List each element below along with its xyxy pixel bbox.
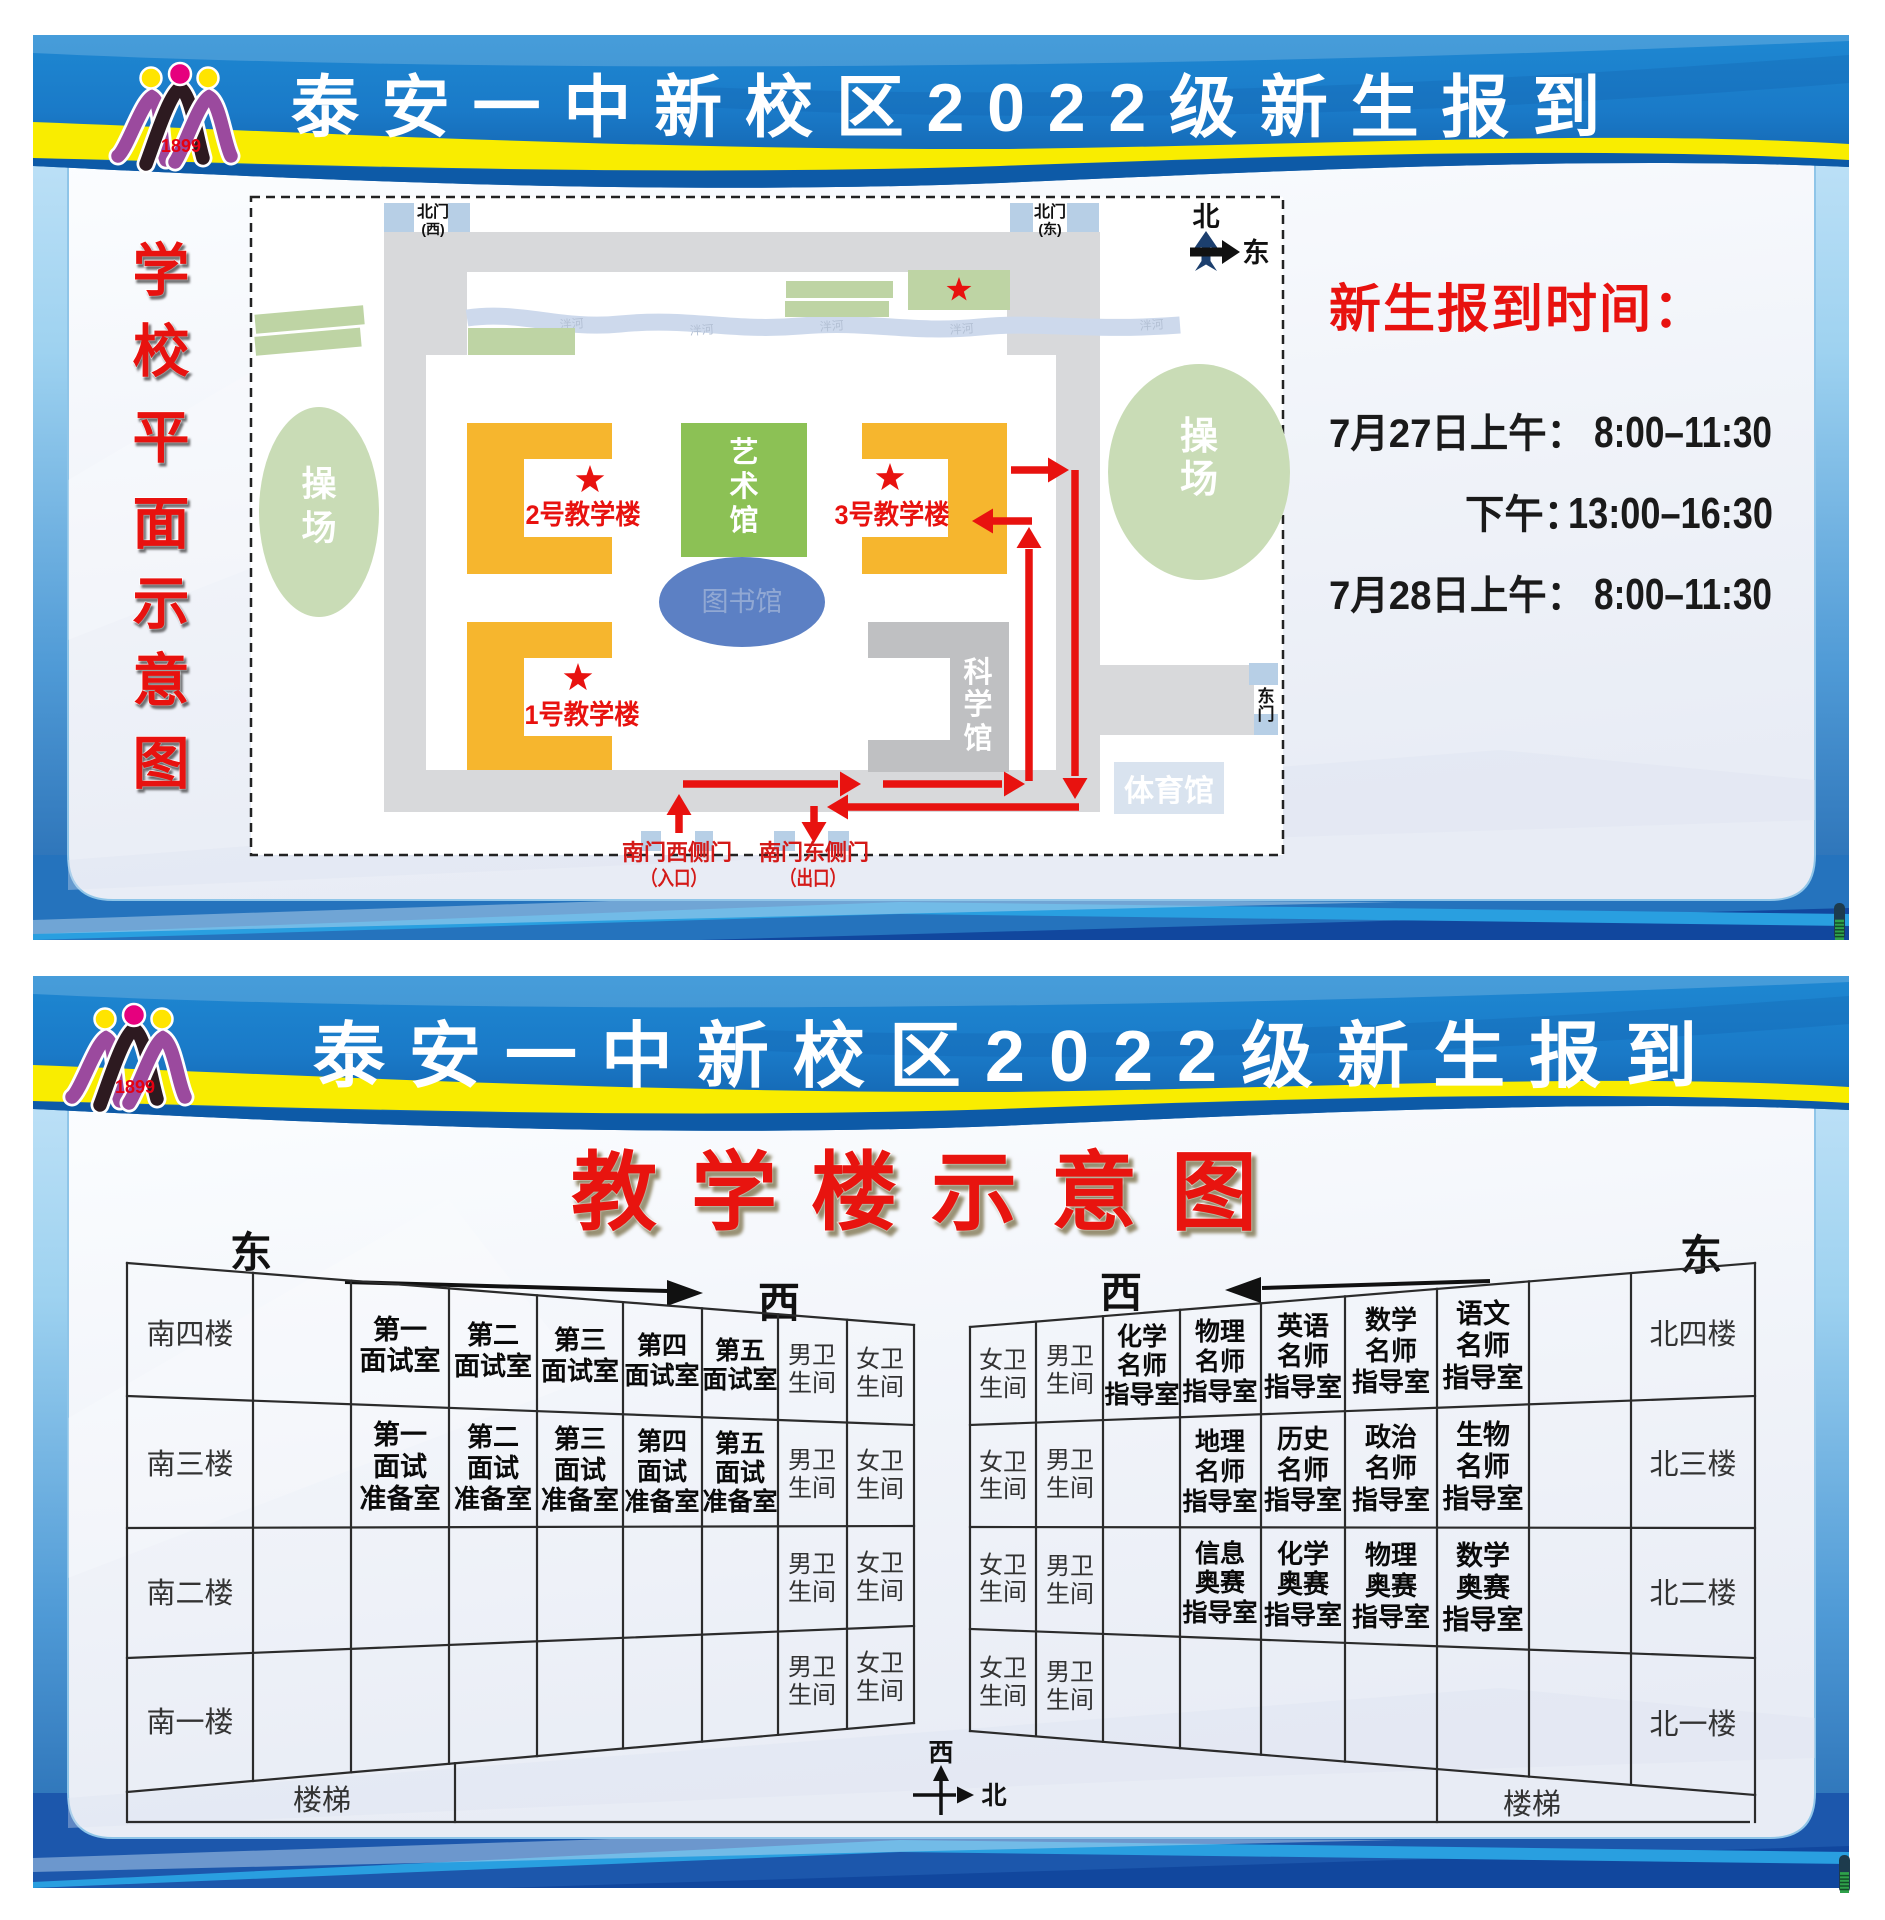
svg-text:学: 学 [133, 239, 190, 303]
svg-text:准备室: 准备室 [541, 1485, 619, 1515]
svg-text:（入口）: （入口） [641, 867, 707, 890]
svg-text:第二: 第二 [467, 1422, 519, 1452]
svg-text:奥赛: 奥赛 [1277, 1569, 1330, 1599]
svg-text:北: 北 [1193, 202, 1220, 232]
svg-text:泰安一中新校区2022级新生报到: 泰安一中新校区2022级新生报到 [291, 70, 1623, 146]
svg-text:生间: 生间 [856, 1578, 904, 1605]
svg-text:生间: 生间 [979, 1476, 1027, 1503]
svg-text:男卫: 男卫 [1046, 1344, 1094, 1370]
svg-text:泮河: 泮河 [949, 321, 974, 337]
svg-text:化学: 化学 [1277, 1539, 1329, 1569]
svg-text:名师: 名师 [1277, 1455, 1329, 1485]
svg-text:生间: 生间 [788, 1370, 836, 1397]
svg-text:名师: 名师 [1195, 1347, 1245, 1376]
svg-text:面试室: 面试室 [541, 1356, 619, 1386]
svg-text:面试室: 面试室 [360, 1345, 441, 1376]
svg-text:英语: 英语 [1277, 1311, 1329, 1341]
svg-text:面试: 面试 [637, 1458, 687, 1486]
svg-text:北一楼: 北一楼 [1649, 1708, 1736, 1741]
svg-text:面试: 面试 [715, 1459, 765, 1487]
svg-text:13:00–16:30: 13:00–16:30 [1568, 489, 1773, 538]
svg-text:面: 面 [133, 492, 190, 556]
svg-text:面试: 面试 [554, 1455, 606, 1485]
svg-text:南三楼: 南三楼 [146, 1448, 233, 1481]
svg-text:第一: 第一 [373, 1419, 427, 1450]
svg-text:泮河: 泮河 [819, 318, 844, 334]
svg-text:学: 学 [963, 687, 992, 721]
svg-text:8:00–11:30: 8:00–11:30 [1594, 408, 1772, 457]
svg-text:术: 术 [729, 470, 758, 503]
svg-text:1899: 1899 [115, 1077, 155, 1097]
svg-text:生间: 生间 [856, 1374, 904, 1401]
svg-text:东: 东 [1680, 1232, 1722, 1279]
svg-text:场: 场 [1180, 459, 1218, 501]
svg-text:生间: 生间 [856, 1678, 904, 1705]
svg-text:北二楼: 北二楼 [1649, 1577, 1736, 1610]
svg-text:教学楼示意图: 教学楼示意图 [571, 1145, 1291, 1241]
svg-text:指导室: 指导室 [1443, 1362, 1524, 1393]
svg-text:生间: 生间 [979, 1579, 1027, 1606]
svg-text:政治: 政治 [1365, 1422, 1417, 1452]
svg-text:数学: 数学 [1456, 1540, 1510, 1571]
svg-text:馆: 馆 [729, 503, 758, 537]
svg-text:东: 东 [1258, 686, 1275, 706]
svg-text:指导室: 指导室 [1352, 1367, 1430, 1397]
svg-text:名师: 名师 [1195, 1457, 1245, 1486]
svg-text:历史: 历史 [1277, 1424, 1330, 1454]
svg-text:操: 操 [301, 465, 336, 504]
svg-text:男卫: 男卫 [1046, 1448, 1094, 1474]
svg-text:北: 北 [981, 1782, 1006, 1810]
svg-text:生间: 生间 [979, 1683, 1027, 1710]
svg-text:（出口）: （出口） [780, 867, 846, 890]
svg-text:东: 东 [230, 1229, 272, 1276]
svg-text:女卫: 女卫 [979, 1655, 1027, 1682]
svg-text:西: 西 [1100, 1269, 1142, 1316]
svg-text:名师: 名师 [1365, 1453, 1417, 1483]
svg-text:男卫: 男卫 [788, 1343, 836, 1369]
svg-text:奥赛: 奥赛 [1365, 1571, 1418, 1601]
svg-text:图书馆: 图书馆 [702, 587, 783, 617]
svg-text:面试室: 面试室 [702, 1365, 777, 1394]
svg-text:第四: 第四 [637, 1331, 687, 1360]
svg-text:指导室: 指导室 [1182, 1377, 1257, 1406]
svg-text:馆: 馆 [963, 721, 992, 755]
svg-text:名师: 名师 [1117, 1351, 1167, 1380]
svg-text:准备室: 准备室 [624, 1487, 699, 1516]
svg-text:生物: 生物 [1456, 1420, 1510, 1450]
svg-text:体育馆: 体育馆 [1124, 774, 1214, 808]
svg-text:北三楼: 北三楼 [1649, 1448, 1736, 1481]
svg-text:指导室: 指导室 [1443, 1604, 1524, 1635]
svg-text:意: 意 [133, 649, 190, 713]
svg-text:物理: 物理 [1365, 1540, 1417, 1570]
svg-text:泰安一中新校区2022级新生报到: 泰安一中新校区2022级新生报到 [313, 1017, 1721, 1097]
svg-text:指导室: 指导室 [1443, 1483, 1524, 1514]
svg-text:女卫: 女卫 [979, 1347, 1027, 1374]
svg-text:新生报到时间：: 新生报到时间： [1329, 281, 1707, 339]
svg-text:东: 东 [1243, 237, 1270, 268]
svg-text:第四: 第四 [637, 1427, 687, 1456]
svg-text:女卫: 女卫 [856, 1650, 904, 1677]
svg-text:名师: 名师 [1277, 1341, 1329, 1371]
svg-text:指导室: 指导室 [1264, 1372, 1342, 1402]
svg-text:面试室: 面试室 [454, 1351, 532, 1381]
svg-text:语文: 语文 [1456, 1298, 1511, 1329]
svg-text:南二楼: 南二楼 [146, 1577, 233, 1610]
svg-text:指导室: 指导室 [1182, 1598, 1257, 1627]
svg-text:第五: 第五 [715, 1429, 765, 1458]
svg-text:西: 西 [928, 1739, 953, 1767]
svg-text:指导室: 指导室 [1264, 1485, 1342, 1515]
svg-text:指导室: 指导室 [1264, 1600, 1342, 1630]
svg-text:南门西侧门: 南门西侧门 [622, 840, 732, 865]
svg-text:门: 门 [1258, 704, 1275, 724]
svg-text:指导室: 指导室 [1104, 1380, 1179, 1409]
svg-text:楼梯: 楼梯 [1503, 1788, 1561, 1821]
svg-text:名师: 名师 [1456, 1451, 1510, 1482]
svg-text:地理: 地理 [1195, 1428, 1245, 1456]
svg-text:奥赛: 奥赛 [1195, 1568, 1246, 1597]
svg-text:男卫: 男卫 [788, 1552, 836, 1578]
svg-text:第五: 第五 [715, 1336, 765, 1365]
svg-text:生间: 生间 [1046, 1371, 1094, 1398]
svg-text:准备室: 准备室 [360, 1483, 441, 1514]
svg-text:生间: 生间 [979, 1375, 1027, 1402]
svg-text:南四楼: 南四楼 [146, 1318, 233, 1351]
svg-text:泮河: 泮河 [1139, 317, 1164, 333]
svg-text:生间: 生间 [788, 1579, 836, 1606]
svg-text:第一: 第一 [373, 1314, 427, 1345]
svg-text:下午：: 下午： [1465, 493, 1583, 537]
svg-text:面试: 面试 [373, 1452, 427, 1482]
svg-text:生间: 生间 [1046, 1581, 1094, 1608]
svg-text:男卫: 男卫 [788, 1655, 836, 1681]
svg-text:奥赛: 奥赛 [1456, 1572, 1511, 1603]
svg-text:指导室: 指导室 [1182, 1487, 1257, 1516]
svg-text:生间: 生间 [1046, 1475, 1094, 1502]
svg-text:物理: 物理 [1195, 1318, 1245, 1346]
svg-text:名师: 名师 [1365, 1336, 1417, 1366]
svg-text:第二: 第二 [467, 1320, 519, 1350]
svg-text:名师: 名师 [1456, 1330, 1510, 1361]
svg-text:示: 示 [133, 572, 190, 636]
svg-text:准备室: 准备室 [702, 1487, 777, 1516]
svg-text:8:00–11:30: 8:00–11:30 [1594, 570, 1772, 619]
svg-text:1号教学楼: 1号教学楼 [525, 699, 640, 730]
svg-text:北门: 北门 [1034, 202, 1066, 221]
svg-text:场: 场 [301, 509, 336, 548]
svg-text:女卫: 女卫 [856, 1448, 904, 1475]
svg-text:楼梯: 楼梯 [293, 1784, 351, 1817]
svg-text:准备室: 准备室 [454, 1484, 532, 1514]
svg-text:男卫: 男卫 [1046, 1660, 1094, 1686]
svg-text:指导室: 指导室 [1352, 1485, 1430, 1515]
svg-text:北四楼: 北四楼 [1649, 1318, 1736, 1351]
svg-text:数学: 数学 [1365, 1305, 1417, 1335]
svg-text:7月27日上午：: 7月27日上午： [1329, 412, 1585, 456]
svg-text:女卫: 女卫 [979, 1449, 1027, 1476]
svg-text:南门东侧门: 南门东侧门 [759, 840, 869, 865]
svg-text:南一楼: 南一楼 [146, 1706, 233, 1739]
svg-text:女卫: 女卫 [979, 1552, 1027, 1579]
svg-text:指导室: 指导室 [1352, 1602, 1430, 1632]
svg-text:女卫: 女卫 [856, 1346, 904, 1373]
svg-text:女卫: 女卫 [856, 1550, 904, 1577]
svg-text:生间: 生间 [788, 1682, 836, 1709]
svg-text:(西): (西) [421, 221, 444, 237]
svg-text:图: 图 [133, 732, 190, 796]
svg-text:泮河: 泮河 [689, 322, 714, 338]
svg-text:2号教学楼: 2号教学楼 [526, 499, 641, 530]
svg-text:艺: 艺 [729, 436, 758, 469]
svg-text:生间: 生间 [788, 1475, 836, 1502]
svg-text:第三: 第三 [554, 1325, 606, 1355]
svg-text:生间: 生间 [1046, 1687, 1094, 1714]
svg-text:校: 校 [133, 320, 190, 384]
svg-text:男卫: 男卫 [1046, 1554, 1094, 1580]
svg-text:生间: 生间 [856, 1476, 904, 1503]
svg-text:平: 平 [133, 406, 190, 470]
svg-text:第三: 第三 [554, 1424, 606, 1454]
svg-text:科: 科 [963, 656, 992, 689]
svg-text:化学: 化学 [1117, 1322, 1167, 1351]
svg-text:7月28日上午：: 7月28日上午： [1329, 574, 1585, 618]
svg-text:(东): (东) [1038, 221, 1061, 237]
svg-text:面试室: 面试室 [624, 1361, 699, 1390]
svg-text:信息: 信息 [1195, 1539, 1245, 1568]
svg-text:面试: 面试 [467, 1453, 519, 1483]
svg-text:3号教学楼: 3号教学楼 [835, 499, 950, 530]
svg-text:操: 操 [1180, 416, 1218, 458]
svg-text:北门: 北门 [417, 202, 449, 221]
svg-text:1899: 1899 [161, 136, 201, 156]
svg-text:男卫: 男卫 [788, 1448, 836, 1474]
